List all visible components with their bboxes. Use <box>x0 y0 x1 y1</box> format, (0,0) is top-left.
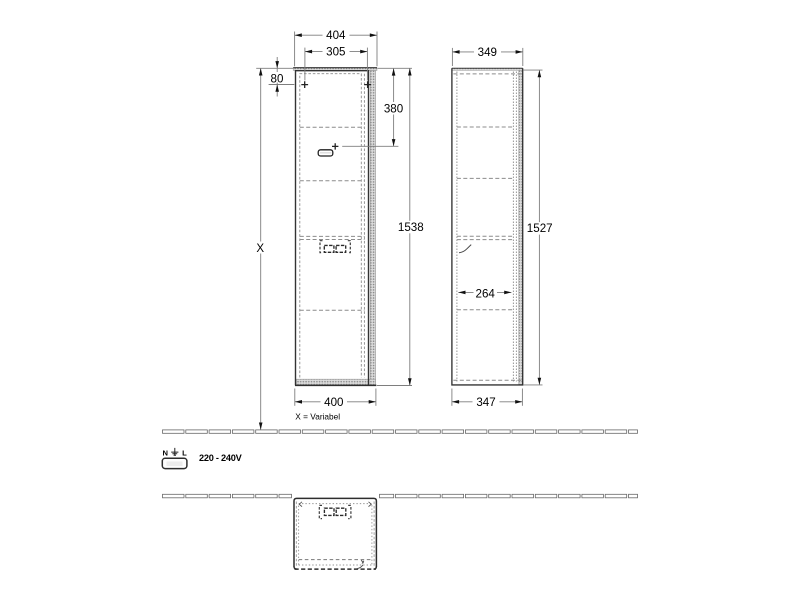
svg-text:347: 347 <box>476 396 495 409</box>
svg-text:80: 80 <box>271 73 284 86</box>
svg-text:X: X <box>256 242 264 255</box>
svg-text:220 - 240V: 220 - 240V <box>199 453 243 463</box>
svg-text:404: 404 <box>326 29 346 42</box>
svg-text:400: 400 <box>324 396 343 409</box>
svg-text:X = Variabel: X = Variabel <box>295 412 340 422</box>
svg-text:305: 305 <box>326 46 345 59</box>
svg-text:L: L <box>182 448 187 457</box>
svg-text:264: 264 <box>476 287 496 300</box>
svg-text:N: N <box>163 448 168 457</box>
svg-text:1527: 1527 <box>527 222 553 235</box>
svg-text:1538: 1538 <box>398 221 424 234</box>
svg-text:349: 349 <box>478 46 497 59</box>
svg-text:380: 380 <box>384 102 403 115</box>
